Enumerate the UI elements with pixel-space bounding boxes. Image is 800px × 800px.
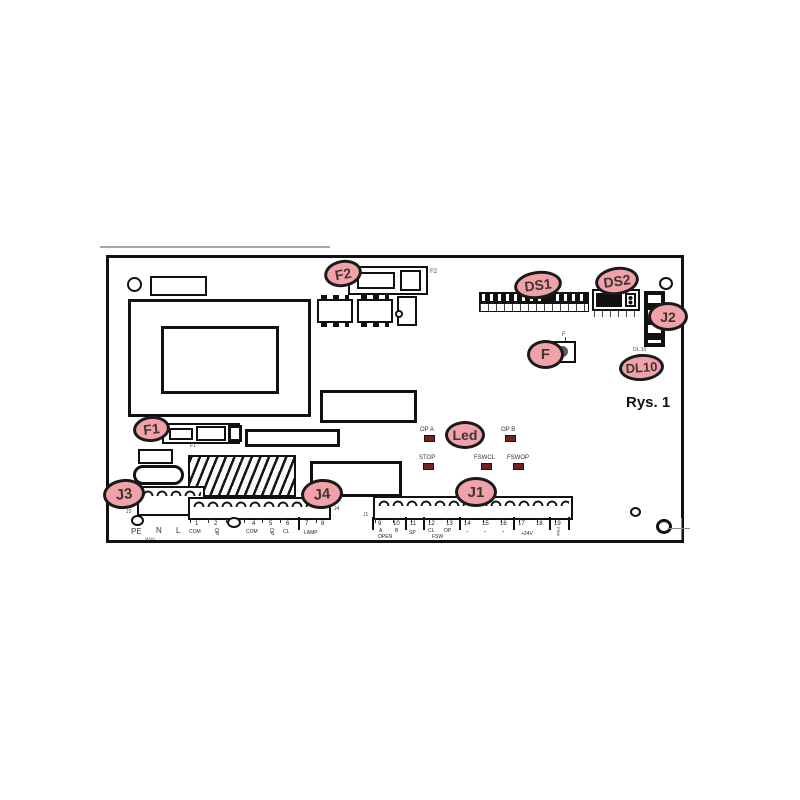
callout-j2: J2 xyxy=(648,302,688,331)
mounting-hole-top-right xyxy=(659,277,673,290)
component-rect-top-left xyxy=(150,276,207,296)
j1-num-14: 14 xyxy=(464,521,471,527)
j1-num-11: 11 xyxy=(410,521,416,527)
j4-num-8: 8 xyxy=(321,521,324,527)
j1-label-dash3: - xyxy=(502,529,504,536)
j1-num-12: 12 xyxy=(428,521,435,527)
j4-num-6: 6 xyxy=(286,521,289,527)
fuse-f1-cap xyxy=(228,425,242,442)
component-rect-small xyxy=(138,449,173,464)
fuse-f2-cap xyxy=(400,270,421,291)
j4-num-1: 1 xyxy=(195,521,198,527)
led-label-fswop: FSWOP xyxy=(507,455,529,461)
j1-num-9: 9 xyxy=(378,521,381,527)
j1-num-15: 15 xyxy=(482,521,489,527)
j4-num-4: 4 xyxy=(252,521,255,527)
mounting-hole-bottom-small xyxy=(630,507,641,517)
j1-label-b: B xyxy=(395,529,398,534)
led-op-a xyxy=(424,435,435,442)
callout-j1: J1 xyxy=(455,477,497,507)
j3-label-l: L xyxy=(176,527,180,535)
j1-separator-6 xyxy=(549,517,551,530)
led-label-op-b: OP B xyxy=(501,427,515,433)
crosshair-v-line xyxy=(681,518,682,540)
j1-num-10: 10 xyxy=(393,521,400,527)
silkscreen-j3-ref: J3 xyxy=(126,510,131,515)
relay-component-2 xyxy=(357,299,393,323)
j1-separator-2 xyxy=(405,517,407,530)
led-op-b xyxy=(505,435,516,442)
ds1-switches-group2 xyxy=(556,294,584,301)
j1-label-fsw: FSW xyxy=(432,535,443,540)
j4-label-op2: OP xyxy=(268,528,273,535)
j1-label-dash1: - xyxy=(466,529,468,536)
ds2-switch-cell xyxy=(625,293,636,307)
capacitor-oval xyxy=(133,465,184,485)
pe-hole xyxy=(131,515,144,526)
j1-separator-1 xyxy=(372,517,374,530)
j4-label-lamp: LAMP xyxy=(304,531,318,536)
j1-separator-4 xyxy=(459,517,461,530)
figure-caption: Rys. 1 xyxy=(626,395,670,410)
j4-separator xyxy=(298,517,300,530)
led-fswop xyxy=(513,463,524,470)
ds1-scale-strip xyxy=(479,303,589,312)
j1-label-plus24: +24V xyxy=(521,532,533,537)
fuse-f1-body xyxy=(169,428,193,440)
j1-separator-5 xyxy=(513,517,515,530)
j1-num-13: 13 xyxy=(446,521,453,527)
j1-label-open: OPEN xyxy=(378,535,392,540)
j1-separator-7 xyxy=(568,517,570,530)
fuse-f2-body xyxy=(357,272,395,289)
led-label-op-a: OP A xyxy=(420,427,434,433)
j4-hole xyxy=(227,517,241,528)
fuse-f1-mid xyxy=(196,426,226,441)
crosshair-h-line xyxy=(668,528,690,529)
j3-label-pe: PE xyxy=(131,528,142,536)
led-label-stop: STOP xyxy=(419,455,435,461)
j4-num-2: 2 xyxy=(214,521,217,527)
component-rect-long xyxy=(245,429,340,447)
j4-label-com2: COM xyxy=(246,530,258,535)
figure-canvas: F2 F DL.10 Rys. 1 F1 J3 PE xyxy=(0,0,800,800)
callout-led: Led xyxy=(445,421,485,449)
component-rect-middle xyxy=(320,390,417,423)
ds2-scale-strip xyxy=(594,311,638,317)
j1-label-fsw-tx: FSW xyxy=(556,527,560,536)
divider-line xyxy=(100,246,330,248)
relay-component-1 xyxy=(317,299,353,323)
silkscreen-f1-ref: F1 xyxy=(190,444,196,449)
led-stop xyxy=(423,463,434,470)
silkscreen-f2-ref: F2 xyxy=(430,269,437,275)
led-fswcl xyxy=(481,463,492,470)
callout-f: F xyxy=(527,340,564,369)
j3-sub-label: MAIN xyxy=(145,537,155,541)
j1-label-op: OP xyxy=(444,529,451,534)
j4-label-com1: COM xyxy=(189,530,201,535)
j4-num-7: 7 xyxy=(305,521,308,527)
j1-num-18: 18 xyxy=(536,521,543,527)
ds2-body xyxy=(596,293,622,307)
j4-label-cl: CL xyxy=(283,530,289,535)
small-component-dot xyxy=(395,310,403,318)
j1-num-17: 17 xyxy=(518,521,525,527)
j1-label-sp: SP xyxy=(409,531,416,536)
small-component xyxy=(397,296,417,326)
led-label-fswcl: FSWCL xyxy=(474,455,495,461)
mounting-hole-bottom-right xyxy=(656,519,672,534)
silkscreen-j1-ref: J1 xyxy=(363,513,368,518)
j4-num-5: 5 xyxy=(269,521,272,527)
transformer-core xyxy=(161,326,279,394)
j1-label-dash2: - xyxy=(484,529,486,536)
j1-num-16: 16 xyxy=(500,521,507,527)
silkscreen-dl10-ref: DL.10 xyxy=(633,348,646,353)
silkscreen-j4-ref: J4 xyxy=(334,507,339,512)
j1-separator-3 xyxy=(423,517,425,530)
j4-tick-row xyxy=(190,519,332,523)
j3-label-n: N xyxy=(156,527,162,535)
j4-label-op1: OP xyxy=(213,528,218,535)
mounting-hole-top-left xyxy=(127,277,142,292)
